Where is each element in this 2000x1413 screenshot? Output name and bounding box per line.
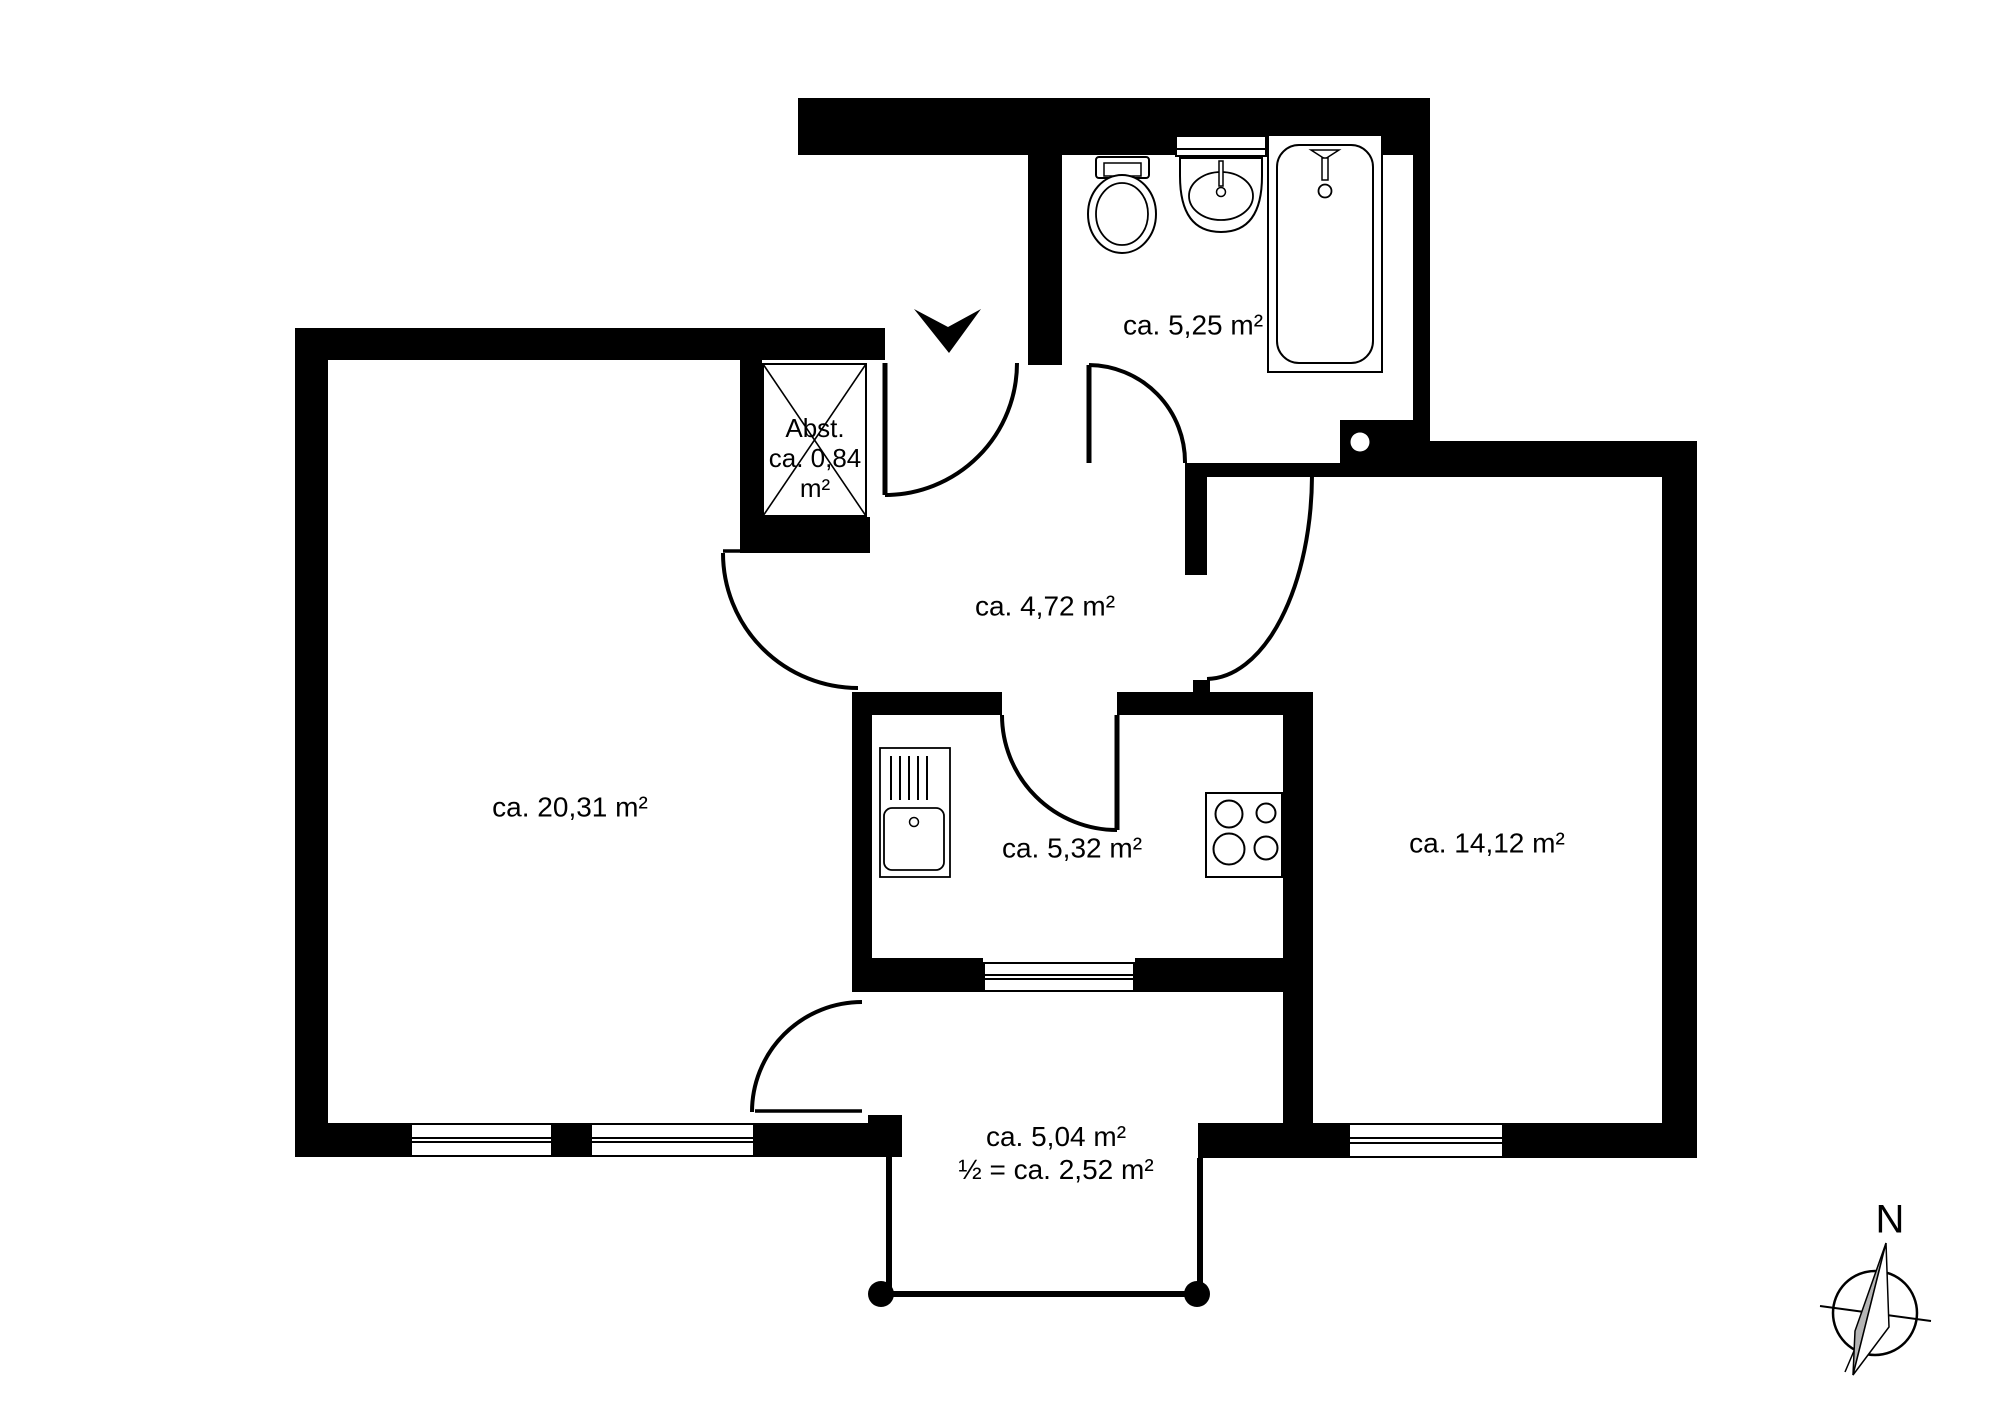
entrance-arrow-icon: [914, 309, 981, 353]
kitchen-sink-icon: [880, 748, 950, 877]
bathtub-icon: [1268, 135, 1382, 372]
compass-north-label: N: [1876, 1198, 1905, 1243]
door-swing-balcony: [752, 1002, 862, 1112]
hallway-area-label: ca. 4,72 m²: [975, 590, 1115, 623]
balcony-half-area: ½ = ca. 2,52 m²: [958, 1154, 1153, 1185]
door-swing-living-room: [723, 551, 858, 688]
balcony-area: ca. 5,04 m²: [986, 1121, 1126, 1152]
wall-duct-icon: [1351, 433, 1370, 452]
storage-unit: m²: [800, 473, 830, 503]
sink-icon: [1180, 158, 1262, 232]
storage-name: Abst.: [785, 413, 844, 443]
stove-icon: [1206, 793, 1282, 877]
bathroom-area-label: ca. 5,25 m²: [1123, 309, 1263, 342]
railing-post-icon: [868, 1281, 894, 1307]
storage-label: Abst. ca. 0,84 m²: [760, 413, 870, 503]
floor-plan: Abst. ca. 0,84 m² ca. 5,25 m² ca. 4,72 m…: [0, 0, 2000, 1413]
storage-area: ca. 0,84: [769, 443, 862, 473]
bedroom-area-label: ca. 14,12 m²: [1409, 827, 1565, 860]
compass-rose-icon: [1820, 1243, 1931, 1375]
door-swing-entrance: [885, 363, 1017, 495]
door-swing-bedroom: [1207, 476, 1312, 679]
kitchen-area-label: ca. 5,32 m²: [1002, 832, 1142, 865]
toilet-icon: [1088, 157, 1156, 253]
railing-post-icon: [1184, 1281, 1210, 1307]
door-swing-kitchen: [1002, 715, 1117, 830]
living-room-area-label: ca. 20,31 m²: [492, 791, 648, 824]
balcony-area-label: ca. 5,04 m² ½ = ca. 2,52 m²: [958, 1120, 1153, 1186]
door-swing-bathroom: [1089, 365, 1185, 463]
